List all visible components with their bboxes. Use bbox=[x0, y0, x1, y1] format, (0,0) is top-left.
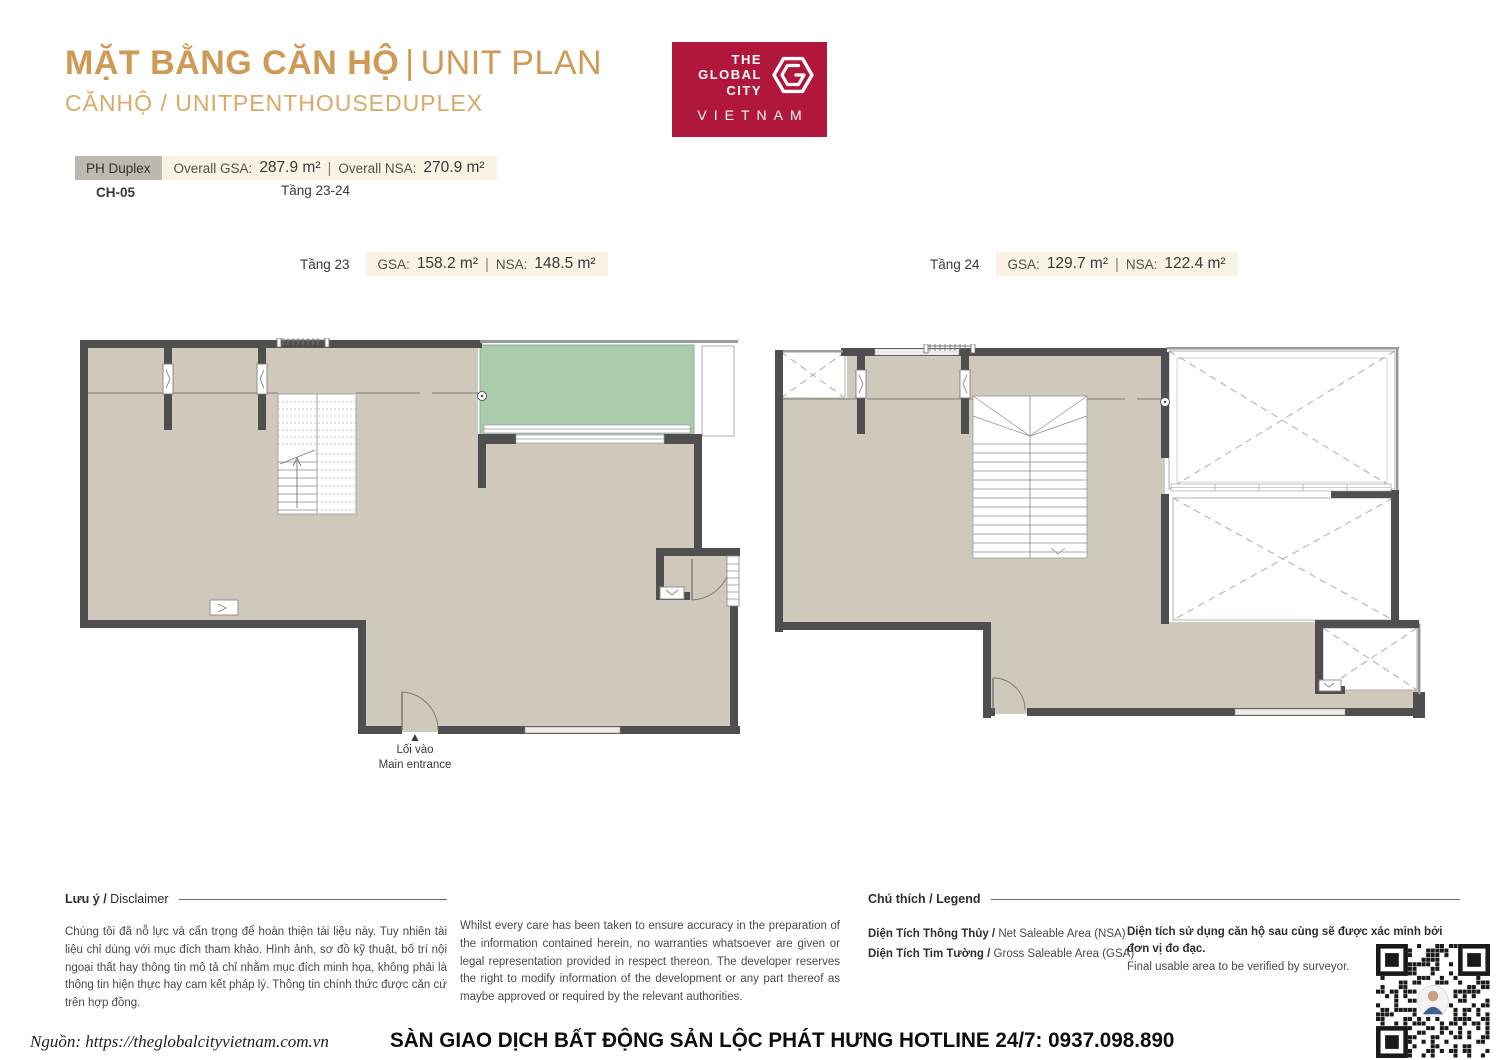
disclaimer-heading: Lưu ý / Disclaimer bbox=[65, 892, 447, 906]
junction-circle bbox=[478, 392, 487, 401]
sliding-door bbox=[516, 435, 664, 443]
overall-gsa-label: Overall GSA: bbox=[174, 161, 253, 176]
void-window-strip bbox=[1171, 484, 1391, 491]
overall-gsa-value: 287.9 m² bbox=[259, 159, 320, 177]
floor-24-label-row: Tầng 24 GSA: 129.7 m² | NSA: 122.4 m² bbox=[930, 252, 1238, 276]
unit-plan-page: MẶT BẰNG CĂN HỘ|UNIT PLAN CĂNHỘ / UNITPE… bbox=[0, 0, 1500, 1060]
entrance-label-en: Main entrance bbox=[340, 758, 490, 773]
unit-code: CH-05 bbox=[96, 185, 135, 200]
bottom-window bbox=[525, 727, 620, 733]
heading-rule bbox=[179, 899, 447, 900]
disclaimer-text-vn: Chúng tôi đã nỗ lực và cẩn trọng để hoàn… bbox=[65, 924, 447, 1013]
void-top-left bbox=[781, 352, 845, 398]
ac-ladder bbox=[727, 556, 739, 606]
floor-23-label-row: Tầng 23 GSA: 158.2 m² | NSA: 148.5 m² bbox=[300, 252, 608, 276]
void-upper-right bbox=[1169, 351, 1395, 489]
main-entrance-marker: ▲ Lối vào Main entrance bbox=[340, 731, 490, 773]
bottom-window bbox=[1235, 709, 1345, 715]
logo-country: VIETNAM bbox=[684, 107, 815, 123]
floor-plan-tang-24 bbox=[775, 344, 1425, 719]
source-url: Nguồn: https://theglobalcityvietnam.com.… bbox=[30, 1032, 329, 1052]
heading-rule bbox=[991, 899, 1460, 900]
wall-vent-fixture bbox=[210, 600, 238, 615]
balcony-green bbox=[480, 345, 694, 436]
overall-nsa-value: 270.9 m² bbox=[423, 159, 484, 177]
floor-24-area-badge: GSA: 129.7 m² | NSA: 122.4 m² bbox=[996, 252, 1238, 276]
entrance-label-vn: Lối vào bbox=[340, 743, 490, 758]
floor-23-area-badge: GSA: 158.2 m² | NSA: 148.5 m² bbox=[366, 252, 608, 276]
legend-item-nsa: Diện Tích Thông Thủy / Net Saleable Area… bbox=[868, 924, 1113, 944]
global-city-g-icon bbox=[771, 53, 815, 97]
disclaimer-en-section: Whilst every care has been taken to ensu… bbox=[460, 918, 840, 1007]
floor-24-name: Tầng 24 bbox=[930, 257, 980, 272]
disclaimer-text-en: Whilst every care has been taken to ensu… bbox=[460, 918, 840, 1007]
floor-23-name: Tầng 23 bbox=[300, 257, 350, 272]
staircase bbox=[973, 396, 1087, 558]
title-english: UNIT PLAN bbox=[421, 44, 602, 82]
entrance-arrow-icon: ▲ bbox=[340, 731, 490, 743]
page-title: MẶT BẰNG CĂN HỘ|UNIT PLAN bbox=[65, 44, 602, 83]
unit-type-badge: PH Duplex bbox=[75, 156, 162, 180]
side-ledge bbox=[702, 346, 734, 436]
hotline-text: SÀN GIAO DỊCH BẤT ĐỘNG SẢN LỘC PHÁT HƯNG… bbox=[390, 1028, 1174, 1053]
door-icon bbox=[163, 364, 173, 394]
badge-divider: | bbox=[327, 160, 331, 177]
junction-circle bbox=[1161, 398, 1170, 407]
overall-nsa-label: Overall NSA: bbox=[338, 161, 416, 176]
vestibule-fixture bbox=[660, 587, 684, 599]
floors-range: Tầng 23-24 bbox=[281, 183, 350, 198]
legend-section: Chú thích / Legend Diện Tích Thông Thủy … bbox=[868, 892, 1460, 976]
page-subtitle: CĂNHỘ / UNITPENTHOUSEDUPLEX bbox=[65, 90, 602, 117]
title-divider: | bbox=[399, 44, 420, 82]
disclaimer-section: Lưu ý / Disclaimer Chúng tôi đã nỗ lực v… bbox=[65, 892, 447, 1013]
overall-area-badge: Overall GSA: 287.9 m² | Overall NSA: 270… bbox=[162, 156, 497, 180]
door-icon bbox=[960, 370, 970, 398]
floor-plan-tang-23 bbox=[80, 338, 740, 738]
door-icon bbox=[257, 364, 267, 394]
top-window bbox=[875, 349, 959, 355]
legend-heading: Chú thích / Legend bbox=[868, 892, 1460, 906]
header-titles: MẶT BẰNG CĂN HỘ|UNIT PLAN CĂNHỘ / UNITPE… bbox=[65, 44, 602, 117]
unit-summary-row: PH Duplex Overall GSA: 287.9 m² | Overal… bbox=[75, 156, 497, 180]
title-vietnamese: MẶT BẰNG CĂN HỘ bbox=[65, 44, 399, 82]
legend-item-gsa: Diện Tích Tim Tường / Gross Saleable Are… bbox=[868, 944, 1113, 964]
door-icon bbox=[856, 370, 866, 398]
room-fixture bbox=[1319, 680, 1341, 691]
void-lower-right bbox=[1173, 498, 1393, 620]
legend-items: Diện Tích Thông Thủy / Net Saleable Area… bbox=[868, 924, 1113, 976]
logo-wordmark: THE GLOBAL CITY bbox=[698, 52, 762, 98]
qr-code bbox=[1374, 944, 1492, 1058]
staircase bbox=[278, 394, 356, 514]
global-city-logo: THE GLOBAL CITY VIETNAM bbox=[672, 42, 827, 137]
